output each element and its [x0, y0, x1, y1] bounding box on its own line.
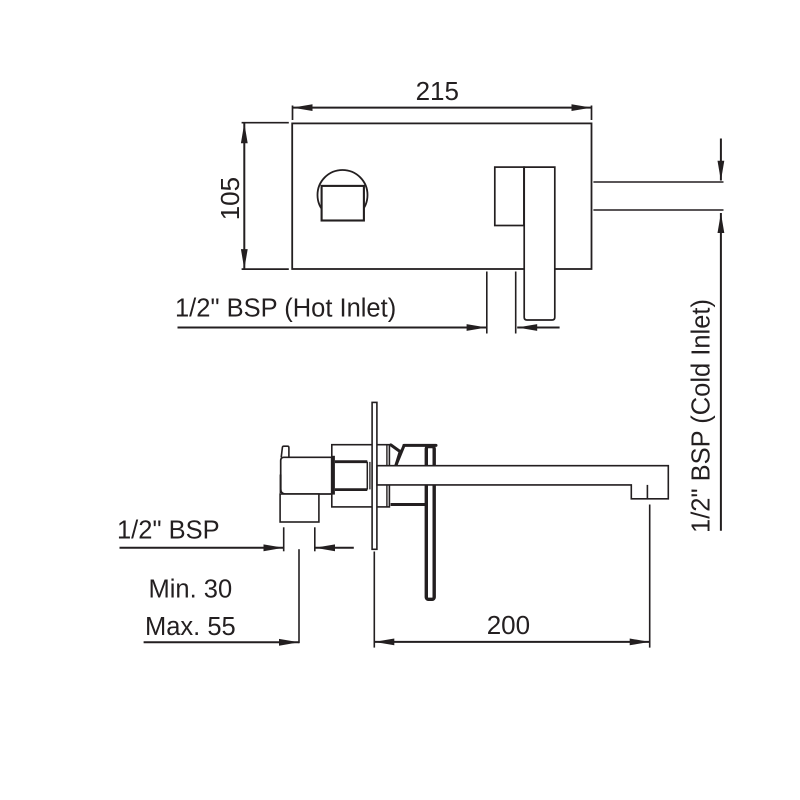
svg-text:Max. 55: Max. 55	[145, 613, 236, 641]
svg-text:1/2" BSP: 1/2" BSP	[117, 517, 220, 545]
svg-text:1/2" BSP (Hot Inlet): 1/2" BSP (Hot Inlet)	[175, 295, 396, 323]
svg-text:200: 200	[487, 610, 530, 640]
svg-text:215: 215	[416, 76, 459, 106]
svg-text:105: 105	[215, 177, 245, 220]
svg-text:1/2" BSP (Cold Inlet): 1/2" BSP (Cold Inlet)	[687, 299, 715, 533]
svg-text:Min. 30: Min. 30	[149, 576, 233, 604]
